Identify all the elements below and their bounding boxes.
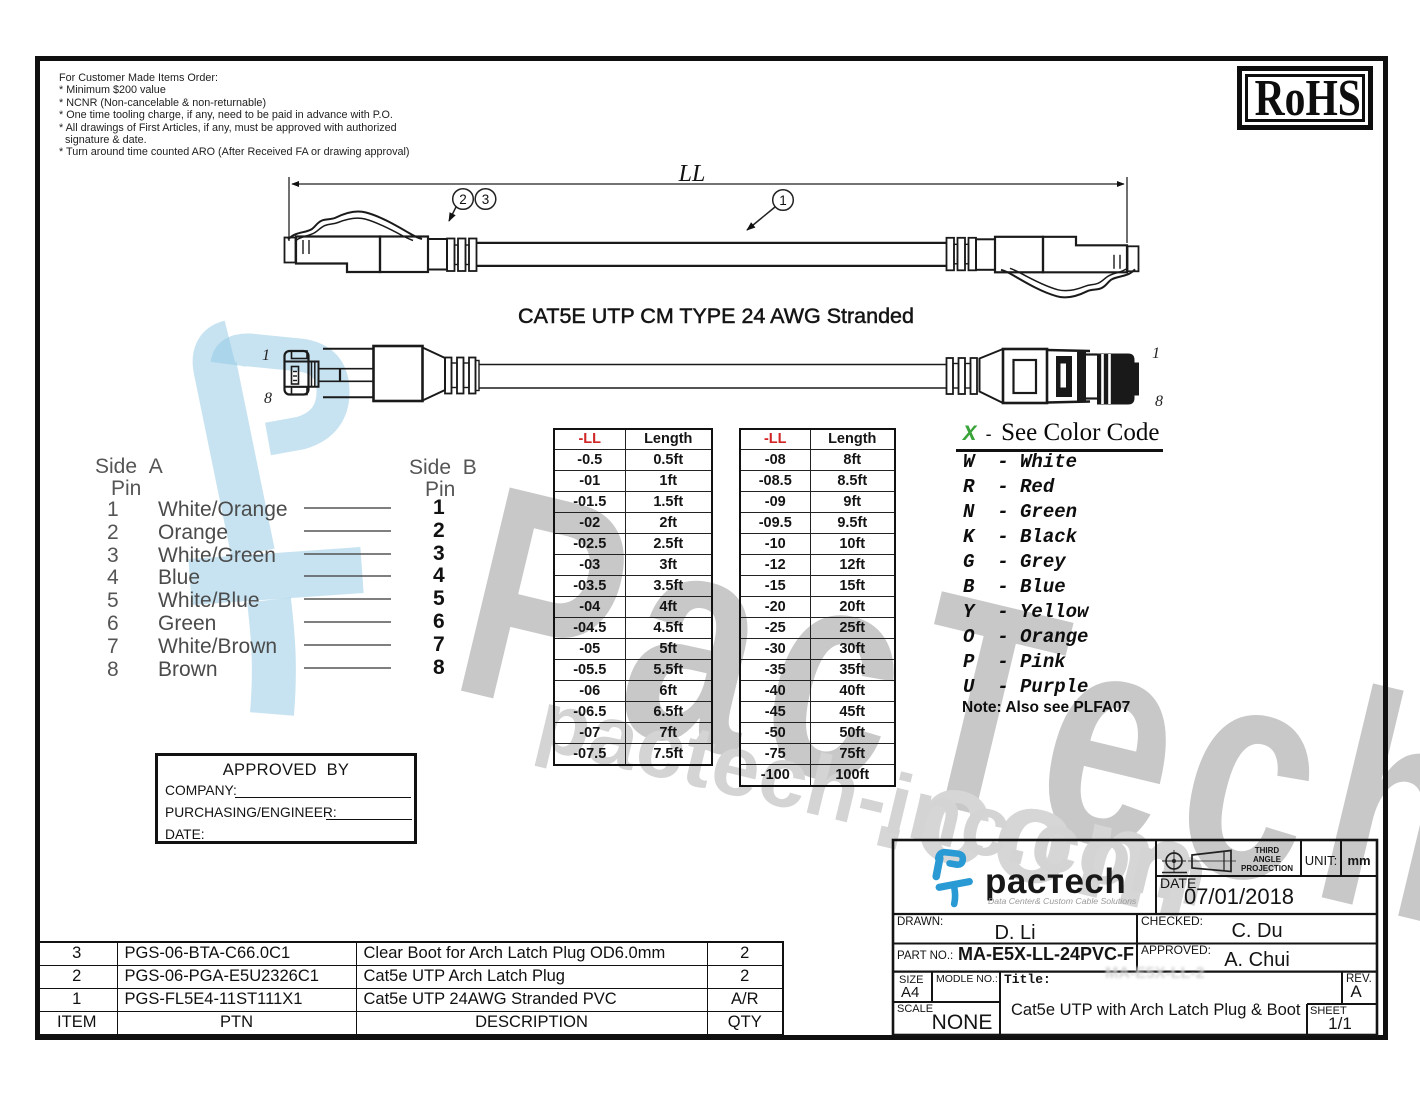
svg-text:APPROVED:: APPROVED: — [1141, 943, 1211, 957]
svg-text:NONE: NONE — [932, 1011, 993, 1034]
svg-text:CHECKED:: CHECKED: — [1141, 914, 1203, 928]
svg-text:A4: A4 — [901, 984, 919, 1001]
svg-text:PART NO.:: PART NO.: — [897, 950, 953, 962]
svg-text:A. Chui: A. Chui — [1224, 949, 1290, 971]
svg-text:DRAWN:: DRAWN: — [897, 916, 943, 928]
svg-text:MA-E5X-LL-24PVC-F: MA-E5X-LL-24PVC-F — [958, 944, 1134, 964]
svg-text:Data Center& Custom Cable Solu: Data Center& Custom Cable Solutions — [988, 896, 1137, 906]
svg-text:MODLE NO.:: MODLE NO.: — [936, 973, 998, 985]
svg-text:C. Du: C. Du — [1231, 920, 1282, 942]
svg-text:PROJECTION: PROJECTION — [1241, 864, 1293, 873]
svg-text:MA-E5X-LL-2: MA-E5X-LL-2 — [1105, 965, 1205, 982]
svg-text:D. Li: D. Li — [994, 922, 1035, 944]
svg-text:SCALE: SCALE — [897, 1003, 933, 1015]
svg-text:THIRD: THIRD — [1255, 846, 1280, 855]
svg-text:Title:: Title: — [1004, 972, 1051, 987]
svg-text:mm: mm — [1347, 853, 1370, 868]
svg-text:A: A — [1350, 982, 1362, 1001]
svg-text:07/01/2018: 07/01/2018 — [1184, 884, 1294, 909]
svg-text:1/1: 1/1 — [1328, 1014, 1352, 1033]
svg-text:Cat5e UTP with Arch Latch Plug: Cat5e UTP with Arch Latch Plug & Boot — [1011, 1001, 1301, 1019]
svg-text:UNIT:: UNIT: — [1305, 853, 1338, 868]
svg-text:ANGLE: ANGLE — [1253, 855, 1282, 864]
